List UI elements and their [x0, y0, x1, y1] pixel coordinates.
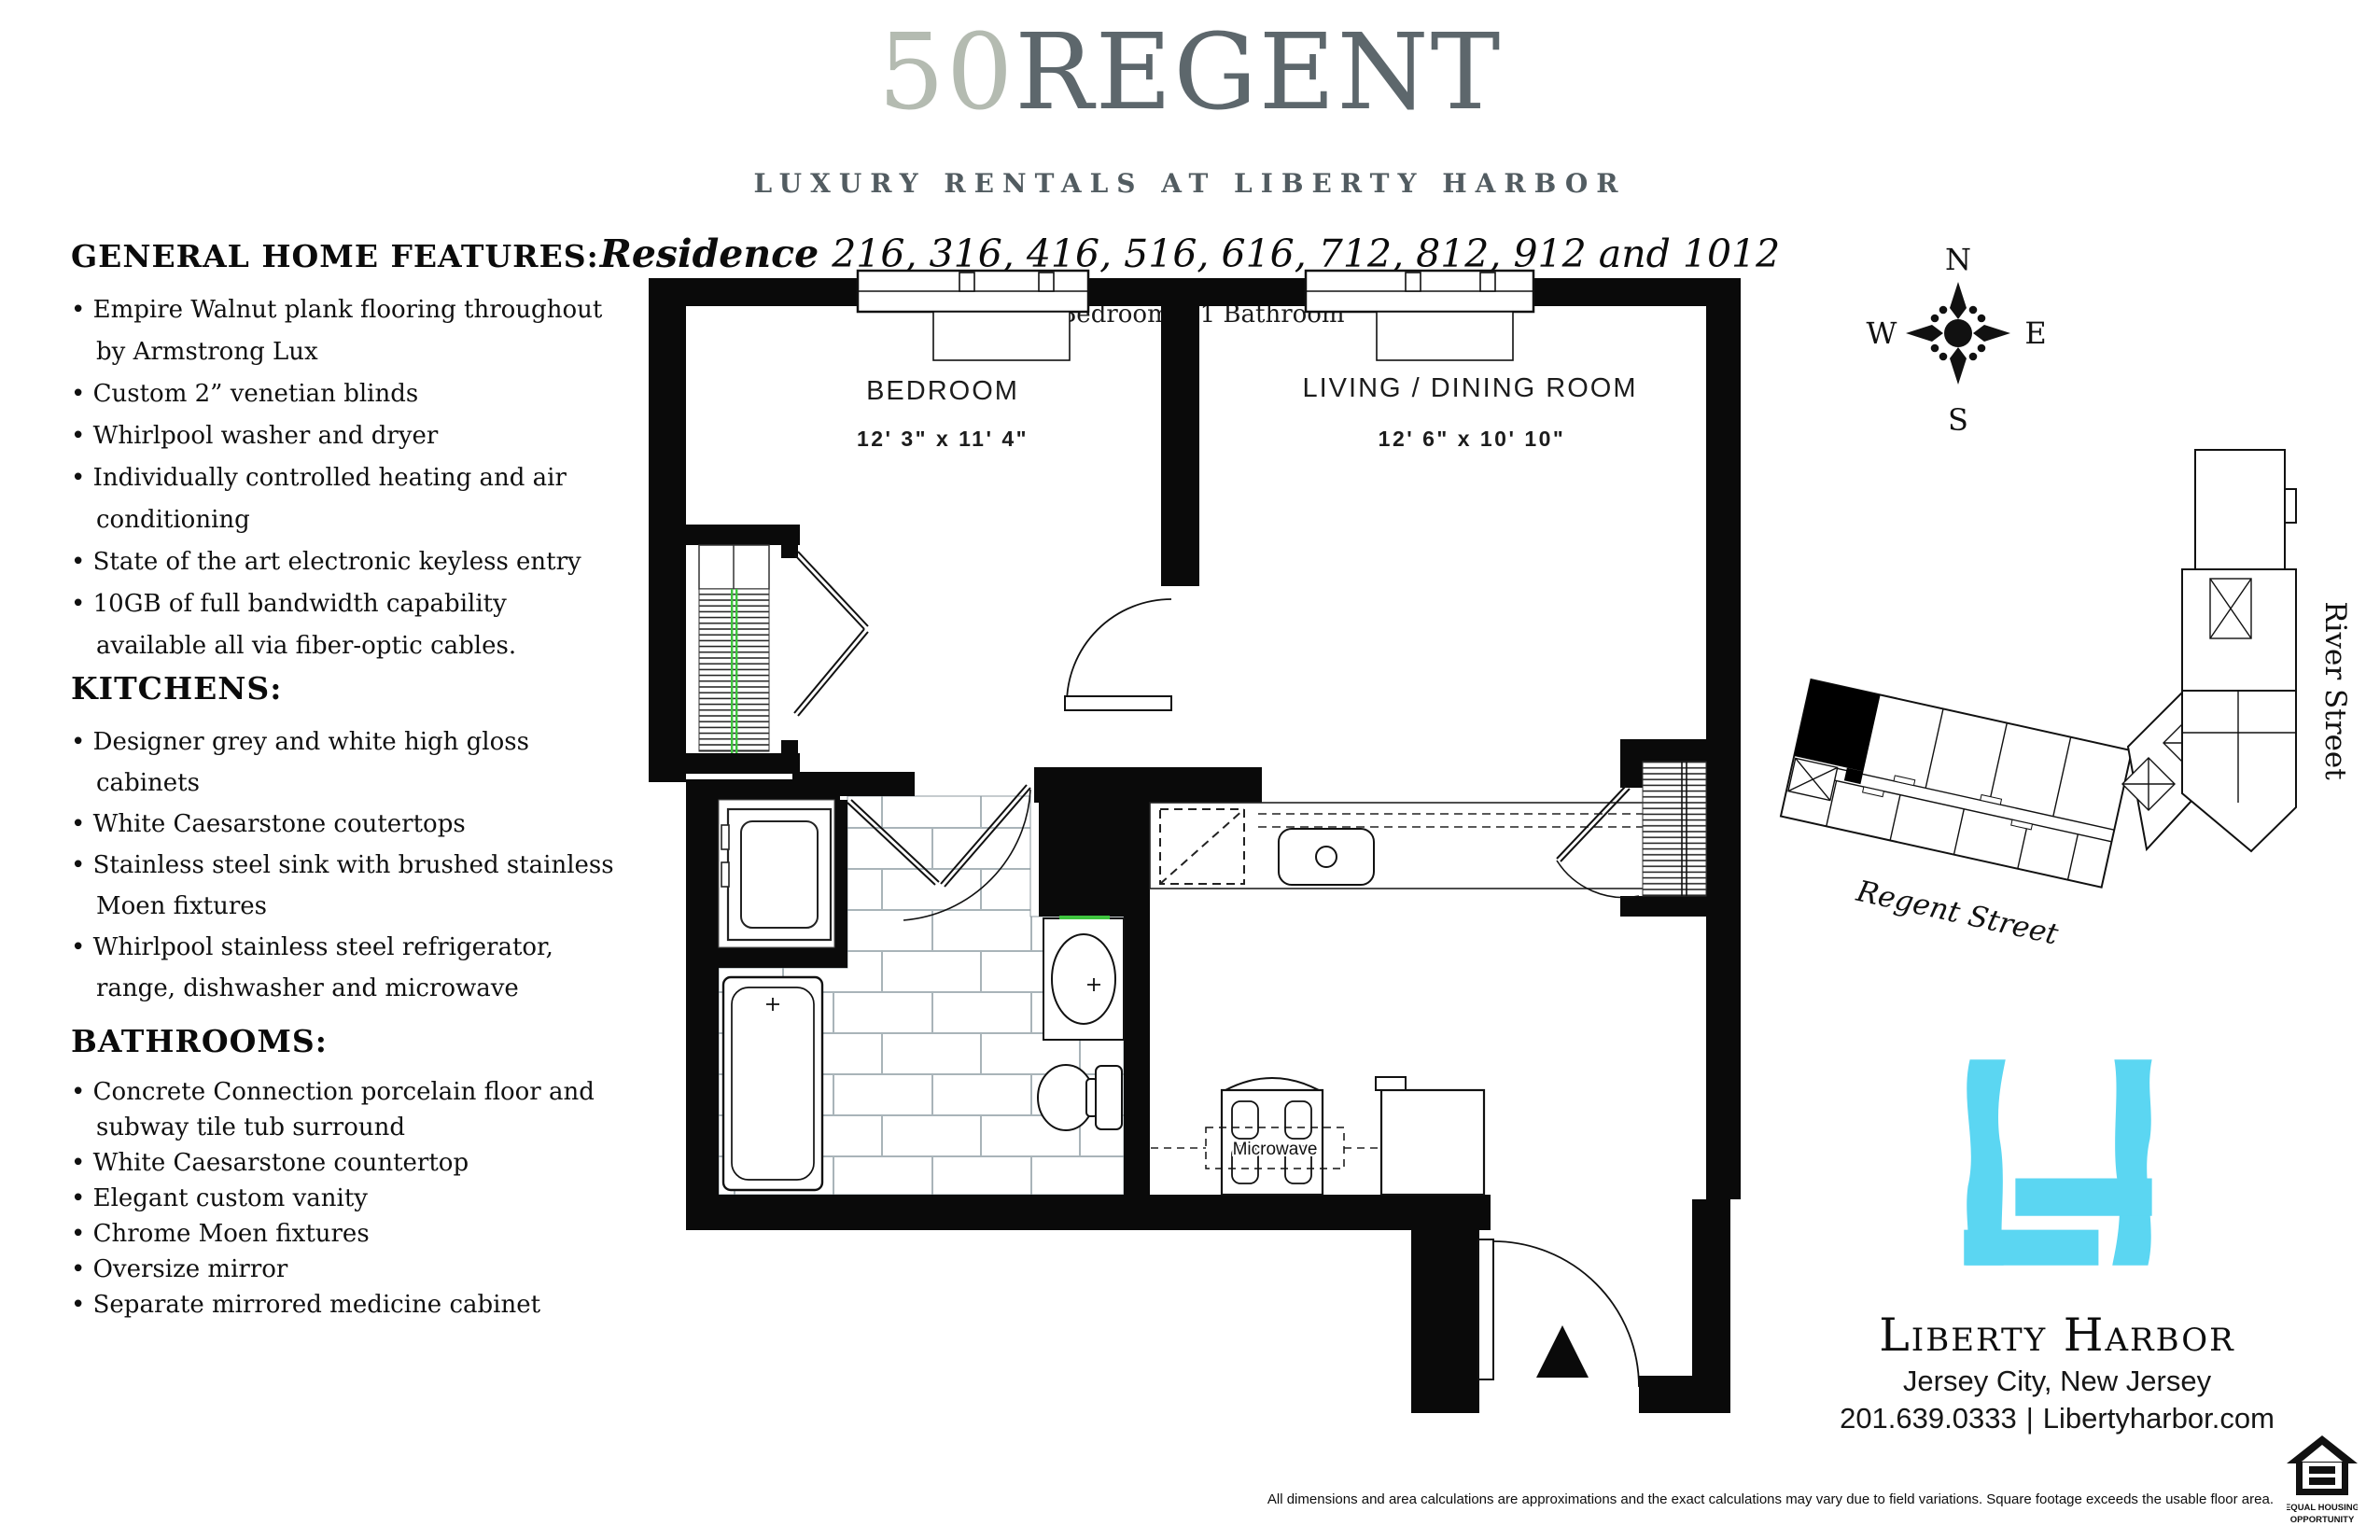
subtitle: LUXURY RENTALS AT LIBERTY HARBOR [0, 168, 2380, 199]
contact-separator: | [2026, 1402, 2034, 1435]
washer-dryer [719, 800, 834, 947]
feature-section: KITCHENS:Designer grey and white high gl… [71, 670, 622, 1009]
feature-item: Separate mirrored medicine cabinet [71, 1287, 622, 1323]
washer-closet-bottom-wall [686, 947, 847, 968]
closet-jamb-bottom [781, 740, 798, 774]
wall-left-upper [649, 278, 686, 782]
bedroom-window-box [933, 312, 1070, 360]
compass-west-arrow-icon [1906, 325, 1943, 342]
microwave-label: Microwave [1233, 1140, 1318, 1159]
compass-west-label: W [1867, 315, 1897, 351]
river-street-wing [2182, 450, 2296, 851]
feature-item: Whirlpool washer and dryer [71, 415, 622, 457]
site-plan: Regent Street River Street [1773, 411, 2352, 989]
kitchen: Microwave [1150, 803, 1706, 1195]
compass-north-label: N [1945, 242, 1971, 277]
bedroom-closet-bifold-door [794, 552, 868, 716]
floor-plan: Microwave BEDROOM 12' 3" x 11' 4" LIVING… [635, 252, 1792, 1484]
building-name: REGENT [1015, 12, 1502, 133]
toilet [1038, 1065, 1122, 1130]
liberty-harbor-logo-icon [1960, 1057, 2158, 1267]
compass-south-arrow-icon [1950, 347, 1967, 385]
wall-right [1706, 278, 1741, 1199]
living-closet-jamb [1620, 762, 1643, 788]
feature-item: Whirlpool stainless steel refrigerator, … [71, 927, 622, 1009]
entry-right-wall [1692, 1199, 1730, 1413]
feature-item: Chrome Moen fixtures [71, 1216, 622, 1252]
sink-drain-icon [1316, 847, 1337, 867]
equal-housing-label-2: OPPORTUNITY [2290, 1515, 2355, 1525]
closet-rod [731, 589, 733, 753]
feature-item: Individually controlled heating and air … [71, 457, 622, 541]
kitchen-bath-wall-top [1034, 767, 1262, 803]
feature-item: Stainless steel sink with brushed stainl… [71, 845, 622, 927]
compass-east-label: E [2024, 315, 2046, 351]
vanity-green-mark [1059, 916, 1110, 919]
feature-item: State of the art electronic keyless entr… [71, 541, 622, 583]
river-street-label: River Street [2318, 601, 2352, 780]
bedroom-living-divider-wall [1161, 278, 1199, 586]
bathtub [723, 977, 822, 1190]
brand-phone: 201.639.0333 [1840, 1402, 2017, 1435]
equal-housing-logo-icon: EQUAL HOUSING OPPORTUNITY [2287, 1435, 2358, 1533]
bedroom-closet [699, 545, 868, 753]
feature-section: BATHROOMS:Concrete Connection porcelain … [71, 1023, 622, 1323]
bottom-wall [686, 1195, 1491, 1230]
feature-item: White Caesarstone countertop [71, 1145, 622, 1181]
feature-item: 10GB of full bandwidth capability availa… [71, 583, 622, 667]
kitchen-counter [1150, 803, 1706, 889]
regent-street-wing [1781, 679, 2132, 888]
bathroom-right-wall [1124, 917, 1150, 1197]
compass-east-arrow-icon [1973, 325, 2010, 342]
kitchen-bath-wall-block [1039, 798, 1150, 917]
vanity-sink [1043, 916, 1124, 1040]
washer-closet-top-wall [686, 779, 840, 800]
brand-website: Libertyharbor.com [2043, 1402, 2275, 1435]
living-dimensions: 12' 6" x 10' 10" [1379, 427, 1566, 451]
window-mullion-icon [1039, 273, 1054, 291]
bedroom-dimensions: 12' 3" x 11' 4" [857, 427, 1029, 451]
feature-item: Oversize mirror [71, 1252, 622, 1287]
feature-item: Elegant custom vanity [71, 1181, 622, 1216]
living-label: LIVING / DINING ROOM [1302, 373, 1637, 403]
brand-contact: 201.639.0333|Libertyharbor.com [1814, 1402, 2300, 1435]
washer-closet-right-wall [834, 800, 847, 947]
feature-item: Concrete Connection porcelain floor and … [71, 1074, 622, 1145]
brand-location: Jersey City, New Jersey [1814, 1365, 2300, 1398]
range-handle [1225, 1078, 1319, 1090]
living-closet-top-wall [1620, 739, 1741, 762]
compass-north-arrow-icon [1950, 282, 1967, 319]
regent-street-label: Regent Street [1853, 875, 2062, 952]
wall-left-lower [686, 779, 719, 1230]
closet-jamb-top [781, 525, 798, 558]
feature-item: Designer grey and white high gloss cabin… [71, 721, 622, 804]
living-window-box [1377, 312, 1513, 360]
dishwasher [1376, 1077, 1484, 1195]
window-mullion-icon [959, 273, 974, 291]
page-title: 50REGENT [0, 21, 2380, 125]
building-number: 50 [878, 12, 1015, 133]
entry-left-wall [1411, 1230, 1479, 1413]
entry-arrow [1536, 1325, 1589, 1378]
brand-name: Liberty Harbor [1814, 1309, 2300, 1362]
disclaimer-text: All dimensions and area calculations are… [1267, 1491, 2274, 1507]
feature-section-title: KITCHENS: [71, 670, 622, 707]
feature-section-title: GENERAL HOME FEATURES: [71, 238, 622, 274]
feature-section-title: BATHROOMS: [71, 1023, 622, 1059]
living-closet-bottom-wall [1620, 896, 1741, 917]
bedroom-door [1065, 599, 1171, 710]
feature-item: Empire Walnut plank flooring throughout … [71, 289, 622, 373]
feature-item: White Caesarstone coutertops [71, 804, 622, 845]
feature-item: Custom 2” venetian blinds [71, 373, 622, 415]
bedroom-label: BEDROOM [866, 376, 1019, 406]
equal-housing-label-1: EQUAL HOUSING [2287, 1503, 2358, 1513]
range [1222, 1078, 1323, 1195]
brochure-page: 50REGENT LUXURY RENTALS AT LIBERTY HARBO… [0, 0, 2380, 1540]
window-mullion-icon [1406, 273, 1421, 291]
feature-section: GENERAL HOME FEATURES:Empire Walnut plan… [71, 238, 622, 667]
window-mullion-icon [1480, 273, 1495, 291]
